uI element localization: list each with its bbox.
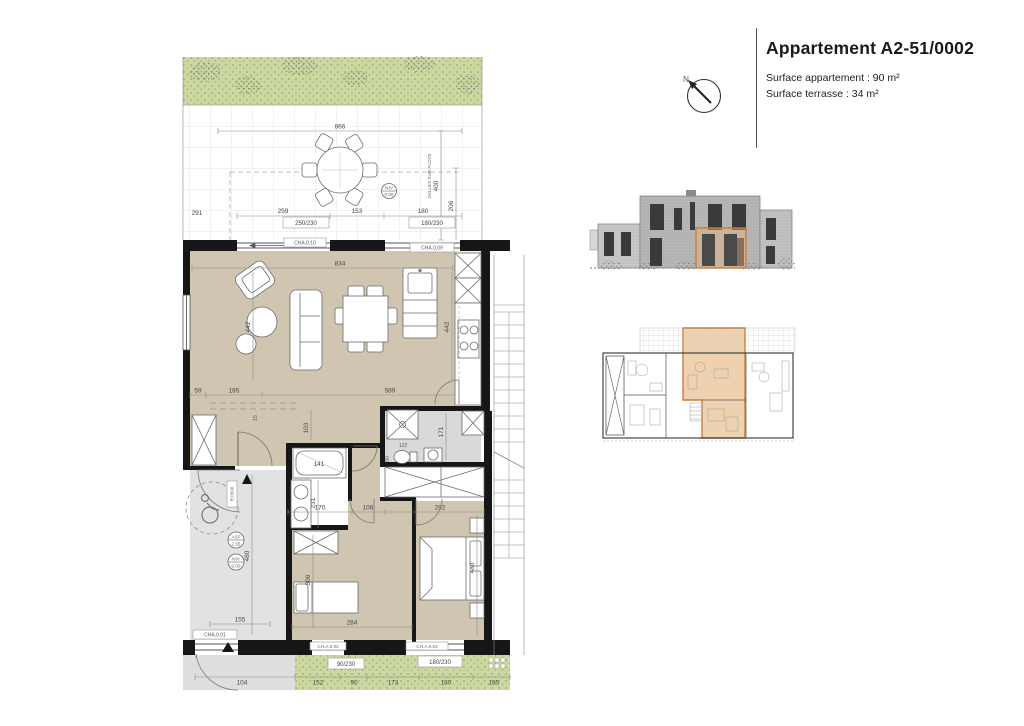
dim-80: 80 — [385, 456, 391, 462]
window-ref-cha002: CH.A.0.02 — [317, 644, 339, 649]
washing-machine — [462, 411, 484, 435]
dim-442-left: 442 — [245, 321, 252, 332]
level-value: 2.55 — [232, 542, 241, 547]
hall-floor — [190, 406, 380, 443]
sofa — [290, 290, 322, 370]
dim-104: 104 — [237, 680, 248, 687]
dim-206: 206 — [448, 200, 455, 211]
dim-400: 400 — [433, 180, 440, 191]
window-ref-cha003: CH.A.0.03 — [416, 644, 438, 649]
facade-elevation — [590, 190, 795, 271]
dim-106: 106 — [363, 505, 374, 512]
door-ref-cha001: CHA.0.01 — [204, 633, 226, 639]
page-title: Appartement A2-51/0002 — [766, 38, 974, 59]
terrace-note: DALLES SUR PLOTS — [427, 154, 432, 199]
window-size-250-230: 250/230 — [295, 221, 317, 227]
dim-259: 259 — [278, 208, 289, 215]
dim-153: 153 — [352, 208, 363, 215]
elevation-highlight — [696, 228, 746, 268]
dim-180: 180 — [418, 208, 429, 215]
dim-866: 866 — [335, 124, 346, 131]
window-size-180-230: 180/230 — [421, 221, 443, 227]
drawing-sheet: NIV 0.00 866 291 259 153 180 400 206 DAL… — [0, 0, 1024, 726]
level-name: NIV — [385, 186, 394, 191]
dim-180-bottom: 180 — [441, 680, 452, 687]
toilet — [394, 451, 417, 464]
window-size-180-230-bottom: 180/230 — [429, 660, 451, 666]
surface-terrace-text: Surface terrasse : 34 m² — [766, 88, 879, 100]
level-name: NIV — [232, 557, 241, 562]
key-plan — [603, 328, 795, 441]
level-value: 0.00 — [385, 192, 394, 197]
vanity — [291, 480, 311, 528]
level-marker-asp: ASP 2.55 — [228, 532, 244, 548]
dim-480-corridor: 480 — [244, 550, 251, 561]
level-name: ASP — [231, 535, 240, 540]
shower — [387, 410, 418, 439]
north-compass: N — [683, 75, 720, 113]
door-threshold-triangle — [222, 642, 234, 652]
door-ref-cha010: CHA.0.10 — [294, 241, 316, 247]
dim-173: 173 — [388, 680, 399, 687]
dim-152: 152 — [313, 680, 324, 687]
dim-15: 15 — [253, 415, 259, 421]
dim-589: 589 — [385, 388, 396, 395]
dim-284: 284 — [347, 620, 358, 627]
washbasin — [424, 448, 442, 462]
level-value: 0.00 — [232, 564, 241, 569]
dim-480-bed2: 480 — [469, 562, 476, 573]
dim-141: 141 — [314, 461, 325, 468]
corridor-floor — [352, 448, 380, 501]
door-ref-cha009: CHA.0.09 — [421, 246, 443, 252]
header-divider — [756, 28, 757, 148]
dim-122: 122 — [399, 443, 408, 449]
dim-185-bottom: 185 — [489, 680, 500, 687]
plan-canvas: NIV 0.00 866 291 259 153 180 400 206 DAL… — [0, 0, 1024, 726]
surface-apartment-text: Surface appartement : 90 m² — [766, 72, 900, 84]
floor-plan: NIV 0.00 866 291 259 153 180 400 206 DAL… — [183, 56, 524, 690]
entrance-ref: R.0500 — [230, 486, 235, 501]
dim-309: 309 — [305, 574, 312, 585]
dim-170: 170 — [315, 505, 326, 512]
dim-291: 291 — [192, 210, 203, 217]
window-size-90-230: 90/230 — [337, 662, 356, 668]
dim-59: 59 — [194, 388, 202, 395]
planting-texture — [183, 57, 482, 105]
kitchen-island — [403, 268, 437, 338]
dim-171: 171 — [438, 426, 445, 437]
dim-442-right: 442 — [444, 321, 451, 332]
terrace: NIV 0.00 866 291 259 153 180 400 206 DAL… — [183, 56, 482, 240]
garden-texture — [295, 655, 510, 690]
single-bed — [294, 582, 358, 613]
dim-103: 103 — [303, 422, 310, 433]
dim-90: 90 — [350, 680, 358, 687]
dim-155: 155 — [235, 617, 246, 624]
terrace-level-marker: NIV 0.00 — [382, 184, 397, 199]
dim-185: 185 — [229, 388, 240, 395]
north-label: N — [683, 75, 689, 84]
level-marker-niv: NIV 0.00 — [228, 554, 244, 570]
dim-834: 834 — [335, 261, 346, 268]
dining-table — [335, 286, 397, 352]
